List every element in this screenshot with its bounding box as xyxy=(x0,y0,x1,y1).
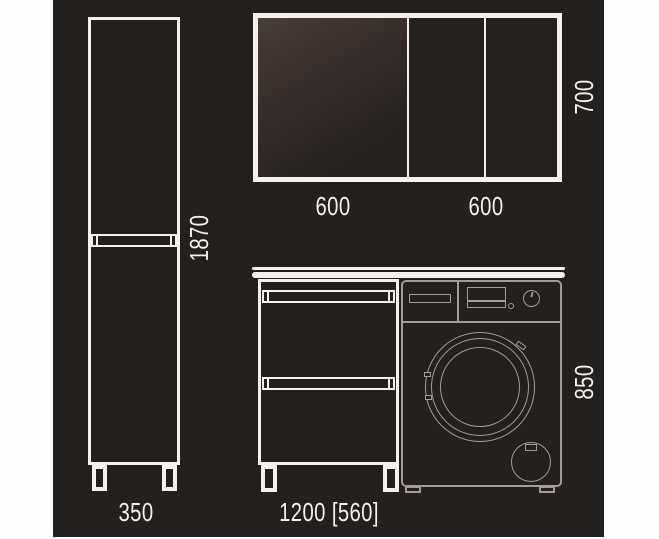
washer-panel-divider xyxy=(457,281,459,322)
washer-foot-right xyxy=(539,486,555,493)
dim-text: 350 xyxy=(118,499,153,525)
dim-text: 600 xyxy=(315,193,350,219)
mirror-door-right xyxy=(486,18,557,177)
mirror-door-left xyxy=(258,18,407,177)
dim-text: 850 xyxy=(571,364,597,399)
washer-display xyxy=(467,287,506,308)
dim-mirror-height: 700 xyxy=(571,75,597,120)
vanity-cabinet-outline xyxy=(258,279,399,465)
washer-indicator-dot xyxy=(508,303,514,309)
dim-vanity-height: 850 xyxy=(571,360,597,405)
washer-filter-notch xyxy=(525,444,537,451)
countertop xyxy=(252,272,565,279)
washer-door-latch-tick-2 xyxy=(425,395,432,400)
tall-cabinet-leg-left xyxy=(92,465,107,491)
tall-cabinet-handle-groove xyxy=(91,234,177,247)
dim-tall-cabinet-width: 350 xyxy=(114,499,159,525)
washer-door-porthole xyxy=(440,347,520,427)
drawing-page: 350 1870 600 600 700 1200 [560] 850 xyxy=(0,0,659,539)
mirror-divider-left xyxy=(407,18,409,177)
vanity-leg-left xyxy=(261,465,277,492)
vanity-drawer-groove-bottom xyxy=(262,377,395,390)
mirror-door-middle xyxy=(409,18,482,177)
washer-display-line xyxy=(468,300,505,302)
washer-foot-left xyxy=(405,486,421,493)
dim-mirror-left-width: 600 xyxy=(311,193,356,219)
mirror-divider-right xyxy=(484,18,486,177)
dim-text: 1200 [560] xyxy=(279,499,379,525)
vanity-drawer-groove-top xyxy=(262,290,395,303)
dim-text: 700 xyxy=(571,79,597,114)
tall-cabinet-leg-right xyxy=(162,465,177,491)
dim-text: 600 xyxy=(468,193,503,219)
dim-vanity-width: 1200 [560] xyxy=(265,499,393,525)
dim-text: 1870 xyxy=(186,215,212,262)
washer-door-latch-tick-1 xyxy=(424,372,431,377)
vanity-leg-right xyxy=(383,465,399,492)
countertop-edge-line xyxy=(252,267,565,270)
dim-tall-cabinet-height: 1870 xyxy=(186,208,212,268)
washer-detergent-drawer xyxy=(409,294,451,303)
washer-control-panel-line xyxy=(402,321,561,323)
dim-mirror-right-width: 600 xyxy=(464,193,509,219)
